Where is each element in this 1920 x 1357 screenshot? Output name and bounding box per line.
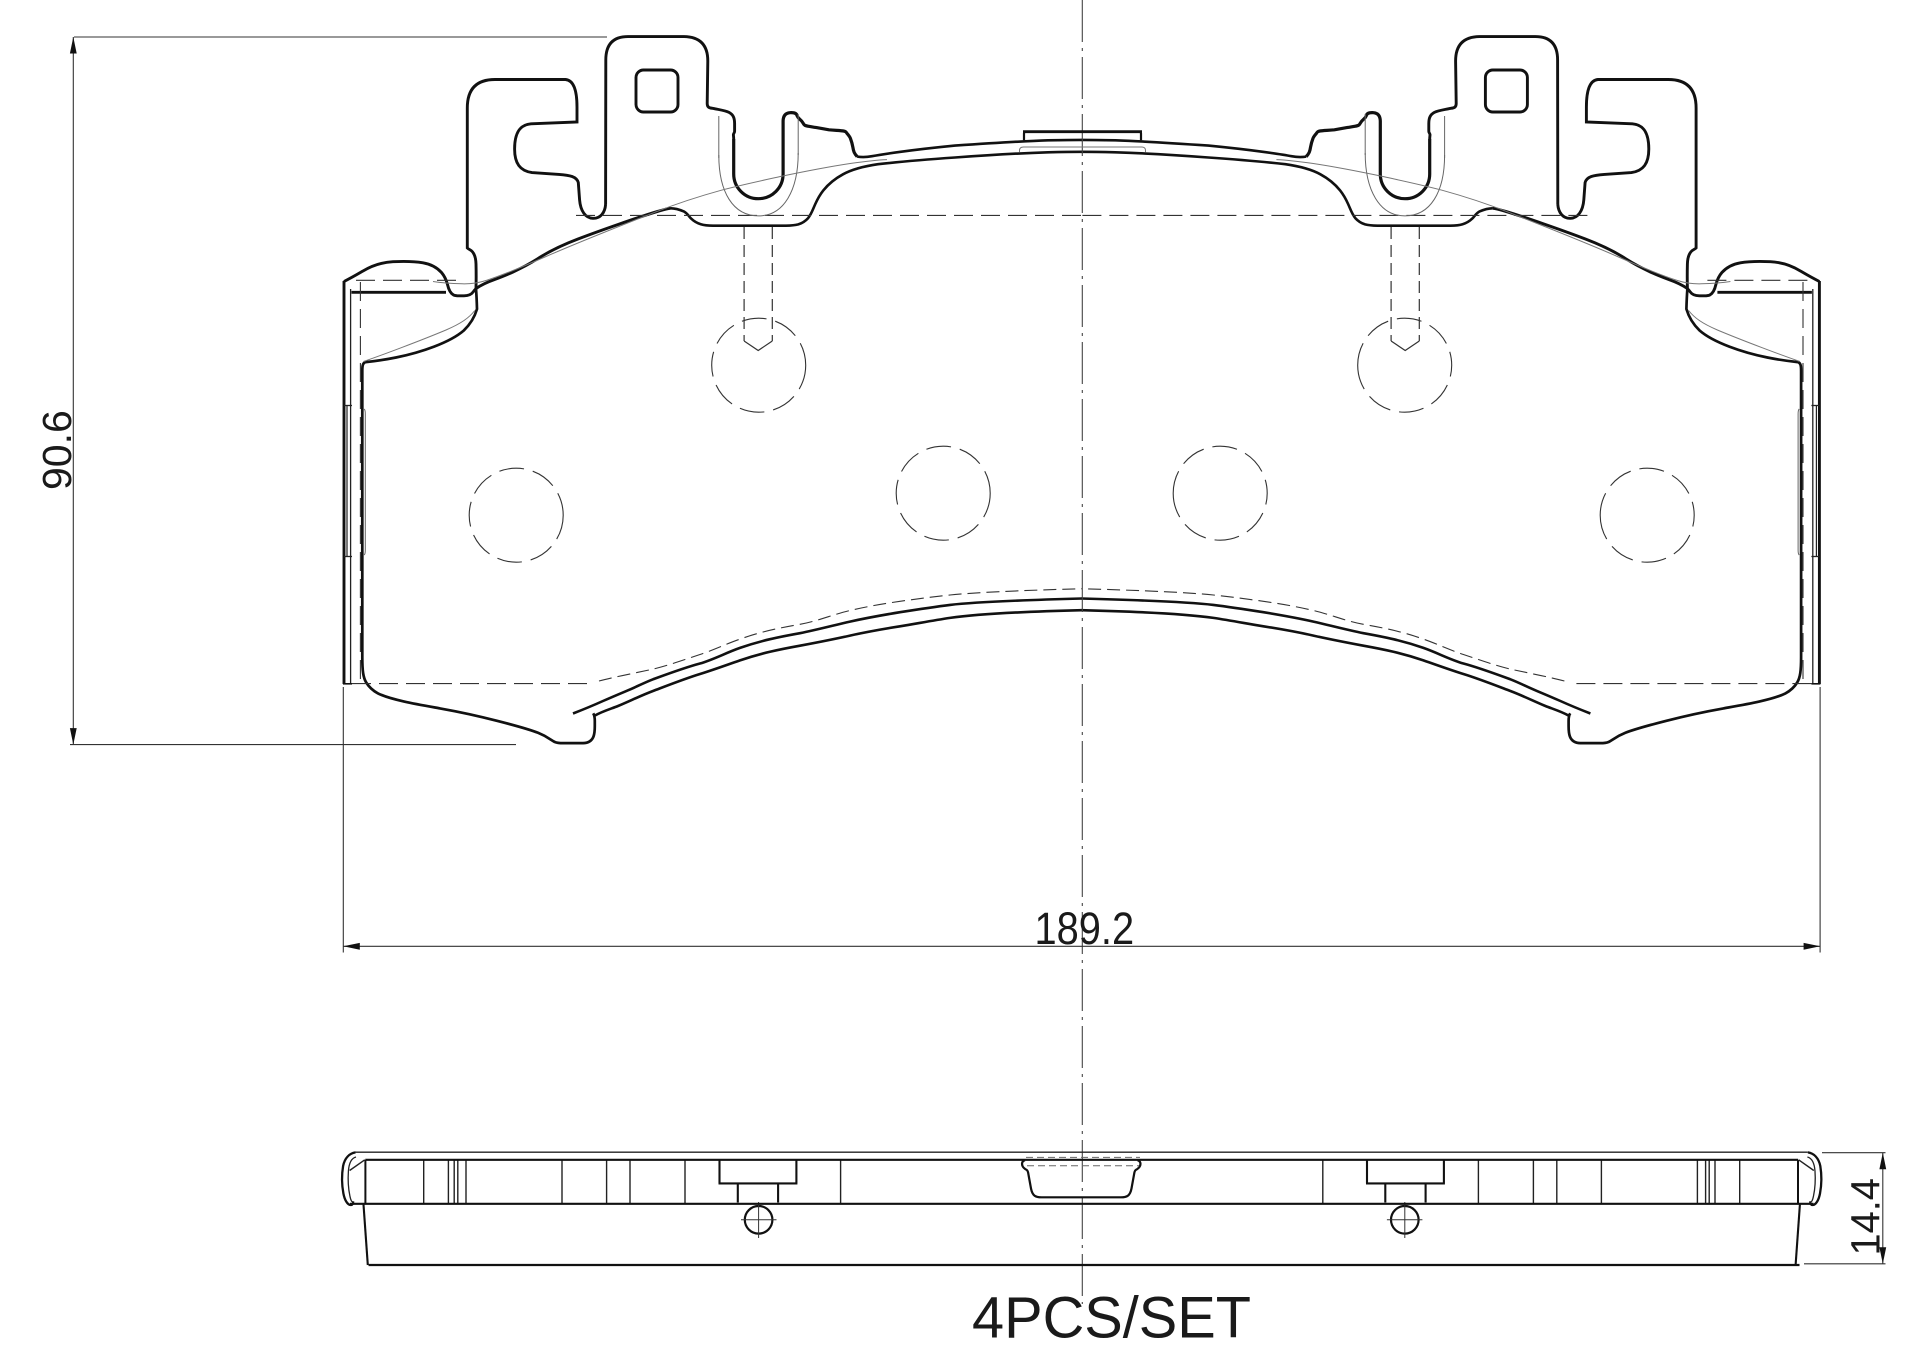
svg-text:189.2: 189.2	[1035, 905, 1135, 955]
svg-text:4PCS/SET: 4PCS/SET	[972, 1286, 1251, 1350]
svg-text:14.4: 14.4	[1842, 1178, 1889, 1255]
svg-text:90.6: 90.6	[34, 410, 80, 490]
